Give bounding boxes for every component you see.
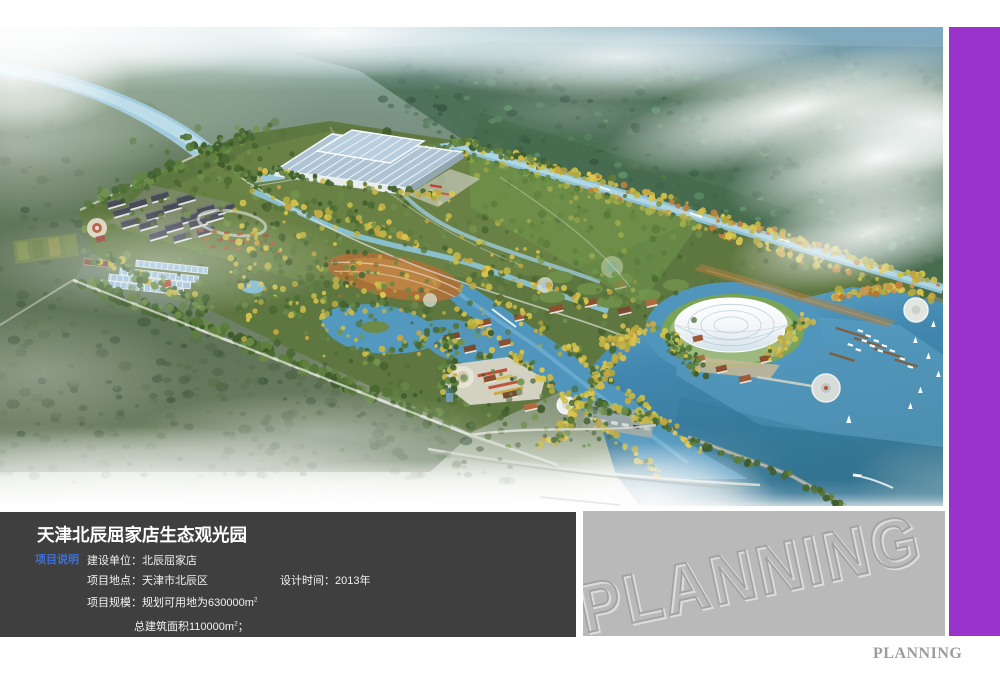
svg-text:PLANNING: PLANNING xyxy=(583,511,928,636)
